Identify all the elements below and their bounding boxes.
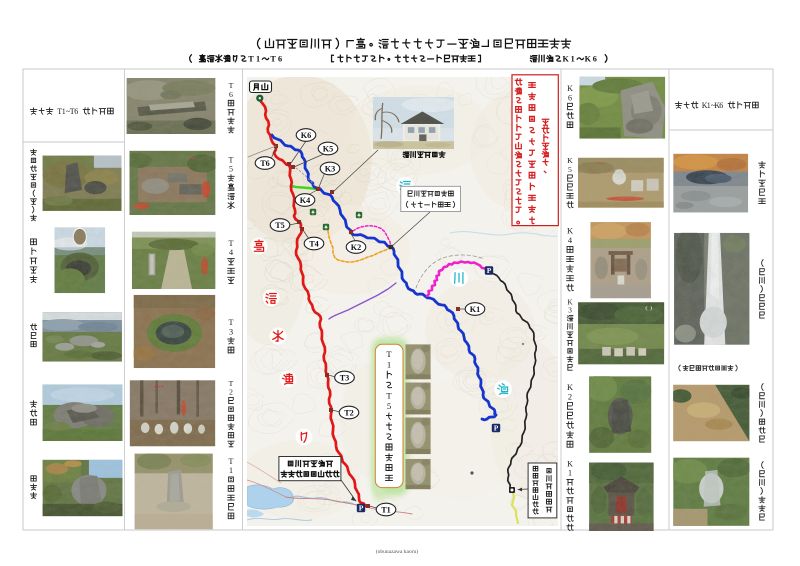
- svg-text:K: K: [567, 383, 573, 392]
- svg-text:P: P: [487, 266, 492, 275]
- svg-text:T: T: [248, 55, 254, 64]
- svg-text:3: 3: [568, 307, 572, 315]
- svg-text:K: K: [567, 156, 573, 165]
- svg-text:T: T: [229, 379, 234, 388]
- svg-text:2: 2: [229, 388, 233, 397]
- svg-text:1: 1: [387, 360, 391, 370]
- svg-text:K2: K2: [351, 243, 361, 252]
- svg-text:6: 6: [593, 55, 597, 64]
- svg-text:5: 5: [229, 165, 233, 174]
- svg-text:6: 6: [229, 90, 233, 99]
- svg-text:K: K: [563, 55, 570, 64]
- svg-text:T: T: [228, 239, 233, 248]
- svg-text:P: P: [359, 504, 364, 513]
- svg-text:T4: T4: [309, 239, 319, 248]
- svg-text:1: 1: [229, 466, 233, 475]
- svg-text:T5: T5: [275, 221, 285, 230]
- svg-text:1: 1: [571, 55, 575, 64]
- svg-text:6: 6: [719, 101, 723, 110]
- svg-text:4: 4: [229, 248, 233, 257]
- svg-text:T: T: [270, 55, 276, 64]
- svg-text:T: T: [386, 391, 392, 401]
- svg-text:K: K: [567, 460, 573, 469]
- svg-text:P: P: [494, 424, 499, 433]
- svg-text:T: T: [386, 349, 392, 359]
- svg-text:6: 6: [74, 107, 78, 116]
- svg-text:K5: K5: [323, 144, 333, 153]
- svg-text:K: K: [585, 55, 592, 64]
- svg-text:K3: K3: [325, 164, 335, 173]
- svg-text:K4: K4: [300, 196, 310, 205]
- svg-text:1: 1: [568, 469, 572, 478]
- svg-text:K: K: [567, 84, 573, 93]
- svg-text:T: T: [229, 156, 234, 165]
- svg-text:T3: T3: [340, 373, 350, 382]
- svg-text:T1: T1: [381, 505, 391, 514]
- svg-text:5: 5: [387, 401, 391, 411]
- svg-text:T: T: [228, 318, 233, 327]
- svg-text:K1: K1: [470, 305, 480, 314]
- svg-text:T: T: [229, 81, 234, 90]
- svg-text:K: K: [567, 226, 573, 235]
- svg-text:K6: K6: [301, 131, 311, 140]
- svg-text:(obunazawa kaoru): (obunazawa kaoru): [376, 548, 418, 555]
- svg-text:T6: T6: [260, 159, 270, 168]
- svg-text:6: 6: [278, 55, 282, 64]
- svg-text:T2: T2: [344, 408, 354, 417]
- svg-text:3: 3: [229, 327, 233, 336]
- svg-text:2: 2: [568, 392, 572, 401]
- svg-text:6: 6: [568, 93, 572, 102]
- svg-text:1: 1: [256, 55, 260, 64]
- svg-text:T: T: [229, 457, 234, 466]
- svg-text:5: 5: [568, 165, 572, 174]
- svg-text:K: K: [567, 298, 573, 306]
